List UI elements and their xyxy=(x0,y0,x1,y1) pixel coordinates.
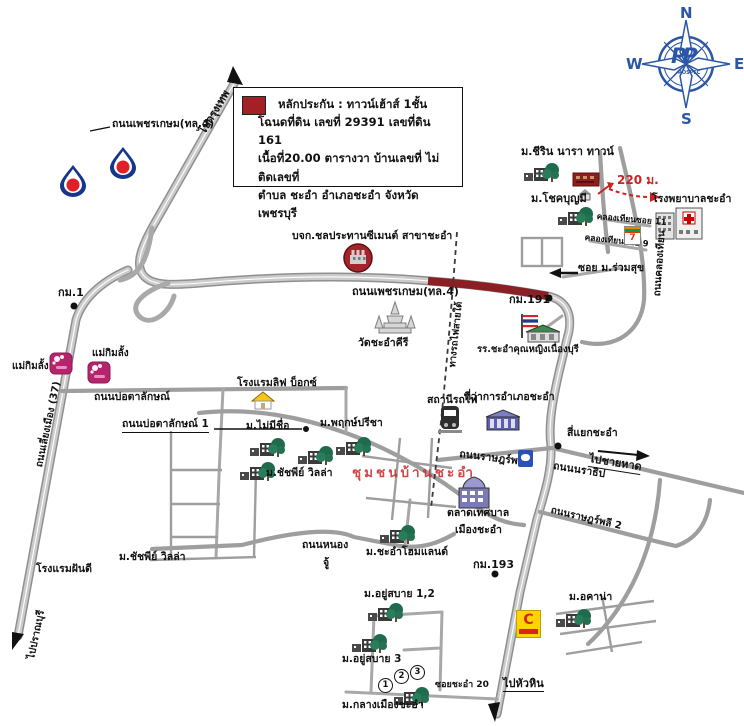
soi-ruamsuk-label: ซอย ม.ร่วมสุข xyxy=(578,263,644,275)
klangmuang-label: ม.กลางเมืองชะอำ xyxy=(342,700,424,712)
cmart-icon: C xyxy=(516,610,541,638)
botalak-road-label: ถนนบ่อตาลักษณ์ xyxy=(94,392,170,404)
village-icon xyxy=(368,603,403,622)
km1-label: กม.1 xyxy=(58,287,84,299)
chirin-nara-town-label: ม.ชีริน นารา ทาวน์ xyxy=(521,146,614,158)
phetkasem-callout-label: ถนนเพชรเกษม(ทล.4) xyxy=(112,119,214,131)
phetkasem-center-label: ถนนเพชรเกษม(ทล.4) xyxy=(352,286,459,298)
yoosabai12-label: ม.อยู่สบาย 1,2 xyxy=(364,589,435,601)
compass-east-label: E xyxy=(734,55,744,73)
village-icon xyxy=(558,207,593,226)
botalak1-road-label: ถนนบ่อตาลักษณ์ 1 xyxy=(122,419,209,433)
school-flag-icon xyxy=(521,314,560,342)
maekimlang-shop-icon xyxy=(88,362,110,383)
nong-road-label-line2: จู้ xyxy=(323,558,329,570)
legend-area: เนื้อที่20.00 ตารางวา บ้านเลขที่ ไม่ติดเ… xyxy=(258,149,454,185)
unit-badge-3: 3 xyxy=(410,665,425,680)
homeland-label: ม.ชะอำโฮมแลนด์ xyxy=(366,547,448,559)
cement-company-logo-icon xyxy=(344,244,372,272)
blue-landmark-sign-icon xyxy=(518,450,533,467)
village-icon xyxy=(298,446,333,465)
district-office-icon xyxy=(486,410,520,430)
baan-chaam-community-label: ชุมชนบ้านชะอำ xyxy=(352,466,476,481)
cha-am-location-map: หลักประกัน : ทาวน์เฮ้าส์ 1ชั้น โฉนดที่ดิ… xyxy=(0,0,744,726)
pruek-preecha-label: ม.พฤกษ์ปรีชา xyxy=(320,418,383,430)
chaam-intersection-label: สี่แยกชะอำ xyxy=(567,428,618,440)
village-icon xyxy=(352,634,387,653)
to-huahin-label: ไปหัวหิน xyxy=(503,678,544,692)
km193-label: กม.193 xyxy=(473,559,514,571)
legend-title: หลักประกัน : ทาวน์เฮ้าส์ 1ชั้น xyxy=(278,95,454,113)
km1-dot xyxy=(71,303,78,310)
compass-south-label: S xyxy=(681,110,692,128)
yoosabai3-label: ม.อยู่สบาย 3 xyxy=(342,654,401,666)
village-icon xyxy=(524,163,559,182)
cmart-glyph: C xyxy=(523,612,533,628)
legend-address: ตำบล ชะอำ อำเภอชะอำ จังหวัดเพชรบุรี xyxy=(258,186,454,222)
village-icon xyxy=(250,438,285,457)
fandee-hotel-label: โรงแรมฝันดี xyxy=(36,564,92,576)
temple-icon xyxy=(375,302,415,333)
soi-chaam20-label: ซอยชะอำ 20 xyxy=(435,681,489,691)
compass-logo-text: ROSPEC xyxy=(678,70,700,76)
chatchapee-villa-label: ม.ชัชพีย์ วิลล่า xyxy=(266,468,333,480)
mai-mee-chue-label: ม.ไม่มีชื่อ xyxy=(246,421,289,433)
legend-box: หลักประกัน : ทาวน์เฮ้าส์ 1ชั้น โฉนดที่ดิ… xyxy=(233,87,463,187)
hospital-label: โรงพยาบาลชะอำ xyxy=(652,194,731,206)
botalak1-dot xyxy=(303,426,309,432)
unit-badge-1: 1 xyxy=(378,678,393,693)
nong-road-label-line1: ถนนหนอง xyxy=(302,540,348,552)
km191-label: กม.191 xyxy=(509,294,550,306)
market-icon xyxy=(459,477,489,508)
ptt-station-icon xyxy=(110,147,136,179)
compass-north-label: N xyxy=(680,4,693,22)
chaam-intersection-dot xyxy=(555,443,562,450)
district-office-label: ที่ว่าการอำเภอชะอำ xyxy=(464,392,555,404)
village-icon xyxy=(380,525,415,544)
compass-logo: PP xyxy=(671,44,694,68)
market-label-line2: เมืองชะอำ xyxy=(455,525,502,537)
legend-swatch xyxy=(242,96,266,115)
road-bypass-37 xyxy=(18,270,128,636)
maekimlang-label: แม่กิมลั้ง xyxy=(12,361,49,372)
hotel-house-icon xyxy=(252,392,274,409)
market-label-line1: ตลาดเทศบาล xyxy=(447,508,509,520)
ptt-station-icon xyxy=(60,165,86,197)
cement-company-label: บจก.ชลประทานซีเมนต์ สาขาชะอำ xyxy=(292,231,452,243)
chokboonmee-label: ม.โชคบุญมี xyxy=(531,193,587,205)
distance-220m-label: 220 ม. xyxy=(617,174,659,187)
acana-label: ม.อคาน่า xyxy=(569,592,612,604)
wat-chaam-kiri-label: วัดชะอำคีรี xyxy=(358,338,408,350)
train-station-icon xyxy=(438,406,462,433)
hotel-livebox-label: โรงแรมลิฟ บ็อกซ์ xyxy=(237,378,317,390)
compass-west-label: W xyxy=(626,55,643,73)
school-label: รร.ชะอำคุณหญิงเนื่องบุรี xyxy=(477,345,579,355)
legend-deed: โฉนดที่ดิน เลขที่ 29391 เลขที่ดิน 161 xyxy=(258,113,454,149)
km193-dot xyxy=(492,571,499,578)
seven-eleven-glyph: 7 xyxy=(629,233,635,243)
seven-eleven-icon: 7 xyxy=(624,226,641,245)
to-bangkok-arrow xyxy=(227,66,243,85)
chatchapee-villa-label-2: ม.ชัชพีย์ วิลล่า xyxy=(119,552,186,564)
village-icon xyxy=(336,437,371,456)
to-pranburi-arrow xyxy=(12,632,24,650)
unit-badge-2: 2 xyxy=(394,669,409,684)
maekimlang-label: แม่กิมลั้ง xyxy=(92,348,129,359)
soi-ruamsuk-arrow xyxy=(549,268,561,278)
maekimlang-shop-icon xyxy=(50,353,72,374)
